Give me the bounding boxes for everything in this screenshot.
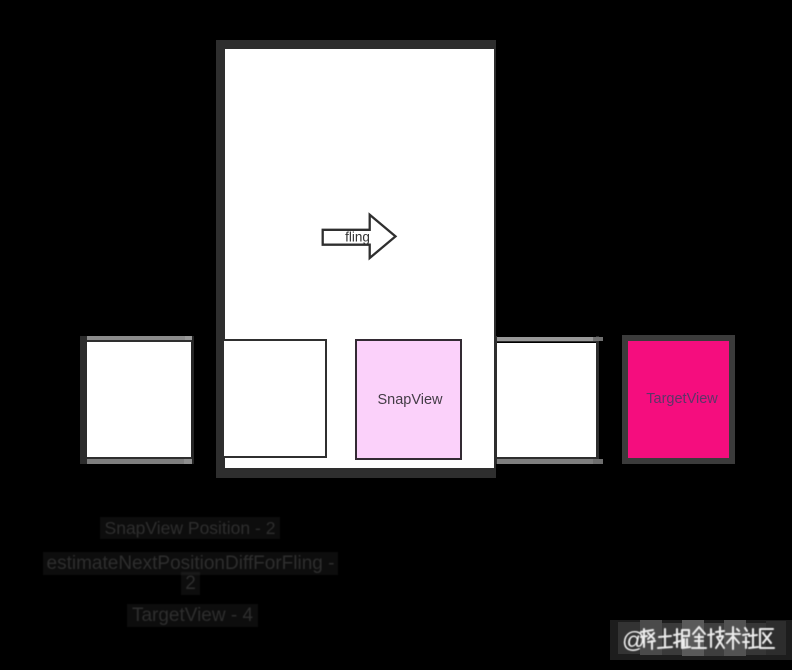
svg-text:fling: fling (345, 229, 370, 244)
